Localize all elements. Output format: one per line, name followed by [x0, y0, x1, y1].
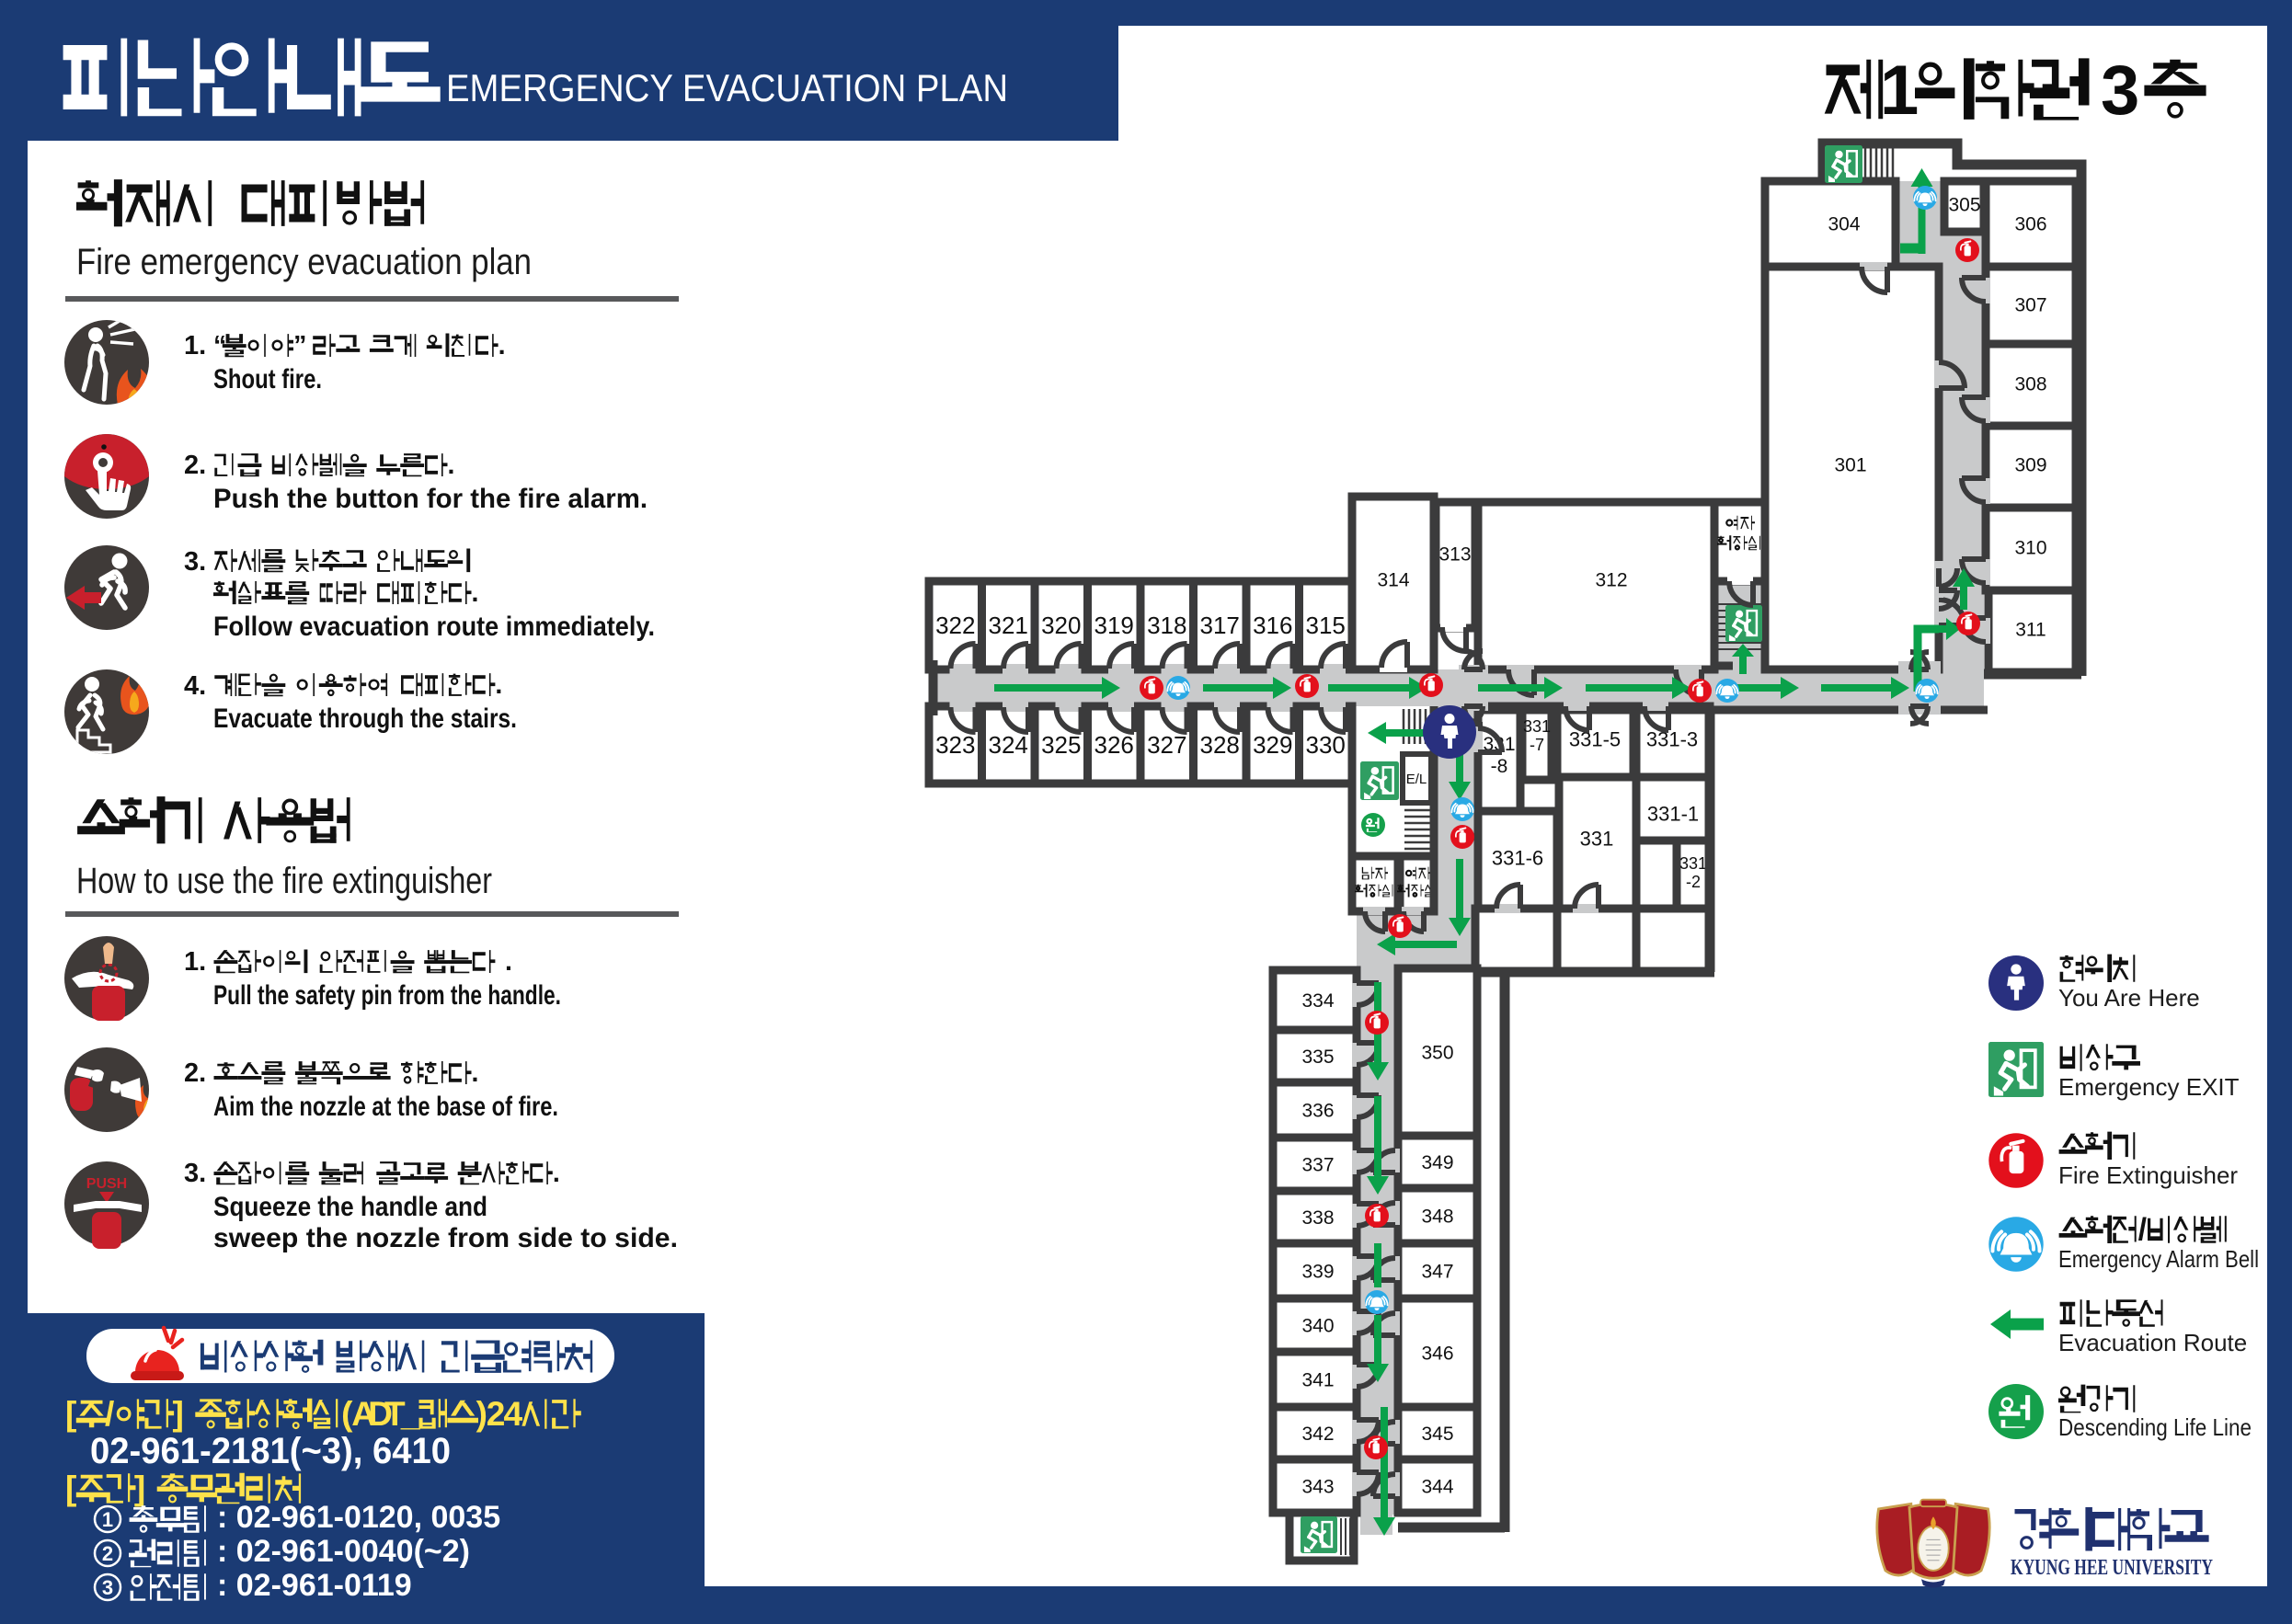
- svg-text:331: 331: [1580, 828, 1614, 851]
- svg-text:350: 350: [1421, 1042, 1453, 1063]
- svg-text:.: .: [495, 670, 502, 700]
- svg-text:327: 327: [1147, 731, 1186, 759]
- svg-text:306: 306: [2014, 213, 2046, 234]
- svg-text:324: 324: [989, 731, 1028, 759]
- svg-text:305: 305: [1948, 194, 1980, 215]
- svg-text:Follow evacuation route immedi: Follow evacuation route immediately.: [213, 612, 655, 642]
- svg-text:348: 348: [1421, 1206, 1453, 1227]
- svg-text:319: 319: [1094, 612, 1134, 639]
- svg-text:3: 3: [102, 1576, 113, 1599]
- svg-text:”: ”: [293, 331, 306, 360]
- svg-text:Emergency EXIT: Emergency EXIT: [2058, 1073, 2240, 1101]
- svg-text:.: .: [499, 331, 506, 360]
- svg-text:342: 342: [1301, 1424, 1334, 1445]
- svg-text:341: 341: [1301, 1369, 1334, 1390]
- svg-text:You Are Here: You Are Here: [2058, 984, 2200, 1012]
- svg-text:1: 1: [1880, 51, 1919, 130]
- svg-text:310: 310: [2014, 537, 2046, 558]
- svg-text:3: 3: [2101, 51, 2139, 130]
- svg-text:Descending Life Line: Descending Life Line: [2058, 1413, 2252, 1441]
- svg-text:]: ]: [173, 1394, 184, 1433]
- svg-text:[: [: [65, 1394, 76, 1433]
- svg-text:Fire Extinguisher: Fire Extinguisher: [2058, 1161, 2238, 1189]
- svg-text:331: 331: [1679, 854, 1707, 873]
- svg-text:4: 4: [504, 1394, 523, 1433]
- svg-text:02-961-2181(~3), 6410: 02-961-2181(~3), 6410: [90, 1431, 451, 1471]
- svg-text:1: 1: [102, 1508, 113, 1531]
- svg-text:Aim the nozzle at the base of: Aim the nozzle at the base of fire.: [213, 1092, 558, 1122]
- svg-text:331-5: 331-5: [1569, 728, 1621, 751]
- svg-text:318: 318: [1147, 612, 1186, 639]
- svg-text:-2: -2: [1686, 873, 1701, 891]
- svg-text:[: [: [65, 1469, 76, 1507]
- svg-text:315: 315: [1306, 612, 1346, 639]
- svg-text:331-3: 331-3: [1646, 728, 1698, 751]
- svg-text:Squeeze the handle and: Squeeze the handle and: [213, 1192, 487, 1222]
- svg-text:2.: 2.: [184, 1058, 206, 1088]
- svg-text:Push the button for the fire a: Push the button for the fire alarm.: [213, 484, 647, 514]
- svg-text:336: 336: [1301, 1100, 1334, 1121]
- svg-text:Shout fire.: Shout fire.: [213, 364, 322, 395]
- svg-text:345: 345: [1421, 1424, 1453, 1445]
- svg-text:3.: 3.: [184, 1159, 206, 1188]
- svg-text:: 02-961-0040(~2): : 02-961-0040(~2): [217, 1534, 470, 1569]
- svg-text:]: ]: [134, 1469, 145, 1507]
- svg-text:.: .: [472, 1058, 479, 1088]
- svg-text:301: 301: [1834, 454, 1866, 475]
- svg-text:“: “: [213, 331, 226, 360]
- svg-text:Evacuate through the stairs.: Evacuate through the stairs.: [213, 703, 517, 734]
- svg-text:321: 321: [989, 612, 1028, 639]
- svg-text:-7: -7: [1530, 736, 1544, 754]
- svg-text:.: .: [505, 947, 512, 977]
- svg-text:.: .: [472, 578, 479, 608]
- svg-text:330: 330: [1306, 731, 1346, 759]
- svg-text:_: _: [400, 1394, 420, 1433]
- svg-text:316: 316: [1253, 612, 1292, 639]
- svg-text:309: 309: [2014, 454, 2046, 475]
- svg-text:Emergency Alarm Bell: Emergency Alarm Bell: [2058, 1245, 2259, 1273]
- svg-text:335: 335: [1301, 1046, 1334, 1068]
- svg-text:4.: 4.: [184, 671, 206, 701]
- svg-text:2: 2: [487, 1394, 506, 1433]
- svg-text:Evacuation Route: Evacuation Route: [2058, 1329, 2247, 1356]
- svg-text:331-6: 331-6: [1492, 847, 1543, 870]
- svg-text:346: 346: [1421, 1343, 1453, 1364]
- svg-text:Fire emergency evacuation plan: Fire emergency evacuation plan: [76, 242, 532, 282]
- svg-text:320: 320: [1041, 612, 1081, 639]
- svg-text:E/L: E/L: [1406, 772, 1427, 787]
- svg-text:349: 349: [1421, 1152, 1453, 1173]
- svg-text:.: .: [553, 1159, 560, 1188]
- svg-text:2: 2: [102, 1542, 113, 1565]
- svg-text:307: 307: [2014, 294, 2046, 315]
- svg-text:3.: 3.: [184, 547, 206, 577]
- svg-text:311: 311: [2015, 619, 2046, 640]
- svg-text:343: 343: [1301, 1476, 1334, 1497]
- svg-text:339: 339: [1301, 1261, 1334, 1282]
- svg-text:338: 338: [1301, 1207, 1334, 1229]
- svg-text:313: 313: [1438, 543, 1471, 565]
- svg-text:PUSH: PUSH: [86, 1176, 127, 1192]
- svg-text:323: 323: [935, 731, 975, 759]
- svg-text:sweep the nozzle from side to: sweep the nozzle from side to side.: [213, 1223, 678, 1253]
- svg-text:-8: -8: [1491, 756, 1508, 777]
- svg-text:334: 334: [1301, 990, 1334, 1012]
- svg-text:Pull the safety pin from the h: Pull the safety pin from the handle.: [213, 980, 561, 1011]
- svg-text:337: 337: [1301, 1154, 1334, 1175]
- svg-text:KYUNG HEE UNIVERSITY: KYUNG HEE UNIVERSITY: [2011, 1556, 2213, 1580]
- svg-text:1.: 1.: [184, 331, 206, 360]
- svg-text:.: .: [448, 451, 455, 480]
- svg-text:304: 304: [1828, 213, 1860, 234]
- svg-text:325: 325: [1041, 731, 1081, 759]
- svg-text:331-1: 331-1: [1647, 803, 1699, 826]
- svg-text:How to use the fire extinguish: How to use the fire extinguisher: [76, 861, 492, 901]
- svg-text:347: 347: [1421, 1261, 1453, 1282]
- svg-text:: 02-961-0119: : 02-961-0119: [217, 1568, 412, 1603]
- svg-text:326: 326: [1094, 731, 1134, 759]
- svg-text:328: 328: [1200, 731, 1240, 759]
- svg-text:331: 331: [1523, 717, 1551, 736]
- svg-text:EMERGENCY EVACUATION PLAN: EMERGENCY EVACUATION PLAN: [446, 66, 1008, 109]
- svg-text:1.: 1.: [184, 947, 206, 977]
- svg-text:329: 329: [1253, 731, 1292, 759]
- svg-text:314: 314: [1377, 569, 1409, 590]
- svg-text:308: 308: [2014, 373, 2046, 395]
- svg-text:/: /: [105, 1394, 114, 1433]
- svg-text:344: 344: [1421, 1476, 1453, 1497]
- svg-text:317: 317: [1200, 612, 1240, 639]
- svg-text:: 02-961-0120, 0035: : 02-961-0120, 0035: [217, 1500, 500, 1535]
- svg-text:/: /: [2138, 1213, 2148, 1248]
- svg-text:2.: 2.: [184, 451, 206, 480]
- svg-text:322: 322: [935, 612, 975, 639]
- svg-text:312: 312: [1595, 569, 1627, 590]
- svg-text:340: 340: [1301, 1315, 1334, 1336]
